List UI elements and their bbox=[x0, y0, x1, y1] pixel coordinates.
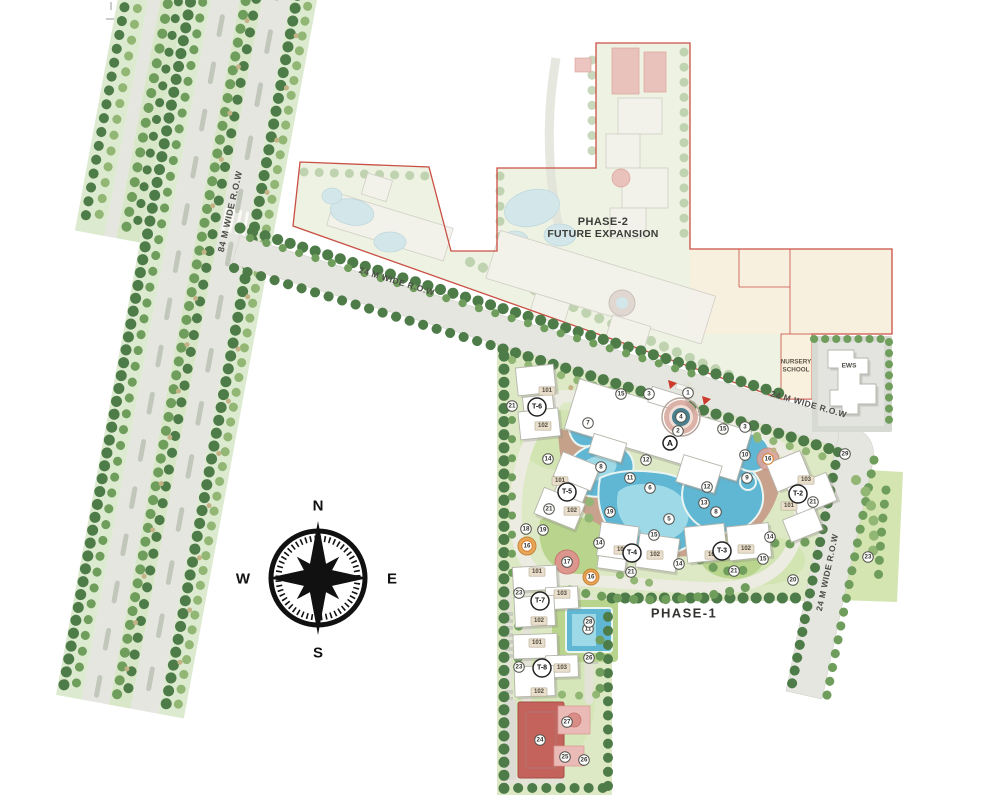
map-marker-18: 18 bbox=[521, 524, 532, 535]
nursery-parcel: NURSERY SCHOOL bbox=[781, 334, 812, 399]
svg-text:27: 27 bbox=[564, 719, 571, 726]
svg-text:26: 26 bbox=[581, 757, 588, 764]
svg-text:16: 16 bbox=[765, 456, 772, 463]
svg-text:21: 21 bbox=[509, 403, 516, 410]
svg-text:26: 26 bbox=[586, 655, 593, 662]
map-marker-6: 6 bbox=[645, 483, 656, 494]
map-marker-4: 4 bbox=[676, 412, 687, 423]
svg-text:21: 21 bbox=[628, 569, 635, 576]
map-marker-24: 24 bbox=[535, 735, 546, 746]
map-marker-19: 19 bbox=[605, 507, 616, 518]
svg-text:21: 21 bbox=[731, 568, 738, 575]
svg-text:23: 23 bbox=[865, 554, 872, 561]
unit-tag-label: 101 bbox=[532, 569, 543, 575]
svg-text:19: 19 bbox=[540, 527, 547, 534]
map-marker-16: 16 bbox=[522, 541, 533, 552]
map-marker-25: 25 bbox=[560, 752, 571, 763]
svg-text:14: 14 bbox=[676, 561, 683, 568]
tower-marker-label: T-6 bbox=[532, 404, 542, 411]
svg-text:28: 28 bbox=[586, 619, 593, 626]
tower-marker-label: T-2 bbox=[793, 491, 803, 498]
compass-south: S bbox=[313, 645, 323, 662]
compass-north: N bbox=[313, 498, 324, 515]
map-marker-26: 26 bbox=[579, 755, 590, 766]
map-marker-29: 29 bbox=[840, 449, 851, 460]
unit-tag-label: 103 bbox=[801, 477, 812, 483]
map-marker-8: 8 bbox=[711, 507, 722, 518]
svg-text:7: 7 bbox=[586, 420, 590, 427]
svg-text:15: 15 bbox=[760, 556, 767, 563]
phase1-label: PHASE-1 bbox=[651, 606, 717, 621]
svg-text:9: 9 bbox=[745, 475, 749, 482]
unit-tag-label: 101 bbox=[542, 388, 553, 394]
tower-marker-label: T-7 bbox=[535, 598, 545, 605]
unit-tag-label: 102 bbox=[538, 423, 549, 429]
map-marker-23: 23 bbox=[514, 588, 525, 599]
map-marker-19: 19 bbox=[538, 525, 549, 536]
map-marker-21: 21 bbox=[544, 504, 555, 515]
svg-text:24: 24 bbox=[537, 737, 544, 744]
svg-text:19: 19 bbox=[607, 509, 614, 516]
map-marker-1: 1 bbox=[683, 388, 694, 399]
site-plan-map: PHASE-2 FUTURE EXPANSION NURSERY SCHOOL … bbox=[0, 0, 1000, 800]
map-marker-14: 14 bbox=[594, 538, 605, 549]
svg-text:4: 4 bbox=[679, 414, 683, 421]
map-marker-5: 5 bbox=[664, 514, 675, 525]
svg-text:3: 3 bbox=[647, 391, 651, 398]
phase2-subtitle: FUTURE EXPANSION bbox=[547, 228, 658, 240]
map-marker-9: 9 bbox=[742, 473, 753, 484]
map-marker-23: 23 bbox=[514, 662, 525, 673]
map-marker-21: 21 bbox=[808, 497, 819, 508]
svg-text:29: 29 bbox=[842, 451, 849, 458]
map-marker-15: 15 bbox=[649, 530, 660, 541]
svg-text:14: 14 bbox=[767, 534, 774, 541]
ews-parcel: EWS bbox=[812, 336, 892, 432]
map-marker-7: 7 bbox=[583, 418, 594, 429]
crop-marks bbox=[106, 2, 116, 19]
svg-text:16: 16 bbox=[524, 543, 531, 550]
map-marker-16: 16 bbox=[763, 454, 774, 465]
svg-text:2: 2 bbox=[676, 428, 680, 435]
svg-text:12: 12 bbox=[704, 484, 711, 491]
map-marker-10: 10 bbox=[740, 450, 751, 461]
svg-text:14: 14 bbox=[596, 540, 603, 547]
svg-text:21: 21 bbox=[810, 499, 817, 506]
svg-text:20: 20 bbox=[790, 577, 797, 584]
site-plan-page: PHASE-2 FUTURE EXPANSION NURSERY SCHOOL … bbox=[0, 0, 1000, 800]
svg-text:23: 23 bbox=[516, 664, 523, 671]
map-marker-3: 3 bbox=[644, 389, 655, 400]
svg-text:15: 15 bbox=[651, 532, 658, 539]
map-marker-15: 15 bbox=[616, 389, 627, 400]
clubhouse-marker-label: A bbox=[667, 438, 673, 448]
unit-tag-label: 102 bbox=[534, 618, 545, 624]
map-marker-20: 20 bbox=[788, 575, 799, 586]
svg-text:1: 1 bbox=[686, 390, 690, 397]
svg-text:17: 17 bbox=[564, 559, 571, 566]
tower-marker-label: T-3 bbox=[717, 548, 727, 555]
svg-text:23: 23 bbox=[516, 590, 523, 597]
compass-east: E bbox=[387, 571, 397, 588]
svg-text:12: 12 bbox=[643, 457, 650, 464]
svg-text:25: 25 bbox=[562, 754, 569, 761]
unit-tag-label: 102 bbox=[567, 508, 578, 514]
map-marker-2: 2 bbox=[673, 426, 684, 437]
tower-marker-label: T-5 bbox=[562, 489, 572, 496]
map-marker-26: 26 bbox=[584, 653, 595, 664]
map-marker-13: 13 bbox=[699, 498, 710, 509]
nursery-label-1: NURSERY bbox=[781, 359, 812, 366]
svg-text:16: 16 bbox=[588, 574, 595, 581]
unit-tag-label: 101 bbox=[784, 503, 795, 509]
tower-marker-label: T-4 bbox=[627, 550, 637, 557]
svg-text:13: 13 bbox=[701, 500, 708, 507]
map-marker-23: 23 bbox=[863, 552, 874, 563]
svg-text:5: 5 bbox=[667, 516, 671, 523]
map-marker-15: 15 bbox=[758, 554, 769, 565]
svg-text:15: 15 bbox=[618, 391, 625, 398]
map-marker-14: 14 bbox=[765, 532, 776, 543]
map-marker-3: 3 bbox=[740, 422, 751, 433]
tower-marker-label: T-8 bbox=[537, 665, 547, 672]
map-marker-16: 16 bbox=[586, 572, 597, 583]
map-marker-21: 21 bbox=[626, 567, 637, 578]
unit-tag-label: 103 bbox=[557, 591, 568, 597]
svg-text:8: 8 bbox=[599, 464, 603, 471]
map-marker-11: 11 bbox=[625, 473, 636, 484]
map-marker-27: 27 bbox=[562, 717, 573, 728]
svg-text:14: 14 bbox=[545, 456, 552, 463]
unit-tag-label: 102 bbox=[534, 689, 545, 695]
unit-tag-label: 102 bbox=[650, 552, 661, 558]
compass-west: W bbox=[236, 571, 251, 588]
map-marker-21: 21 bbox=[507, 401, 518, 412]
highway-84m-corridor bbox=[56, 0, 320, 719]
unit-tag-label: 101 bbox=[532, 640, 543, 646]
svg-text:8: 8 bbox=[714, 509, 718, 516]
nursery-label-2: SCHOOL bbox=[783, 367, 810, 374]
map-marker-12: 12 bbox=[641, 455, 652, 466]
map-marker-12: 12 bbox=[702, 482, 713, 493]
compass-rose: N S W E bbox=[236, 498, 397, 662]
svg-text:3: 3 bbox=[743, 424, 747, 431]
map-marker-14: 14 bbox=[543, 454, 554, 465]
map-marker-17: 17 bbox=[562, 557, 573, 568]
map-marker-28: 28 bbox=[584, 617, 595, 628]
ews-label: EWS bbox=[842, 363, 857, 370]
map-marker-21: 21 bbox=[729, 566, 740, 577]
unit-tag-label: 103 bbox=[557, 665, 568, 671]
svg-text:6: 6 bbox=[648, 485, 652, 492]
svg-text:21: 21 bbox=[546, 506, 553, 513]
unit-tag-label: 102 bbox=[741, 546, 752, 552]
phase2-title: PHASE-2 bbox=[578, 216, 628, 228]
svg-text:18: 18 bbox=[523, 526, 530, 533]
map-marker-15: 15 bbox=[718, 424, 729, 435]
svg-text:15: 15 bbox=[720, 426, 727, 433]
map-marker-8: 8 bbox=[596, 462, 607, 473]
svg-text:11: 11 bbox=[627, 475, 634, 482]
map-marker-14: 14 bbox=[674, 559, 685, 570]
svg-text:10: 10 bbox=[742, 452, 749, 459]
